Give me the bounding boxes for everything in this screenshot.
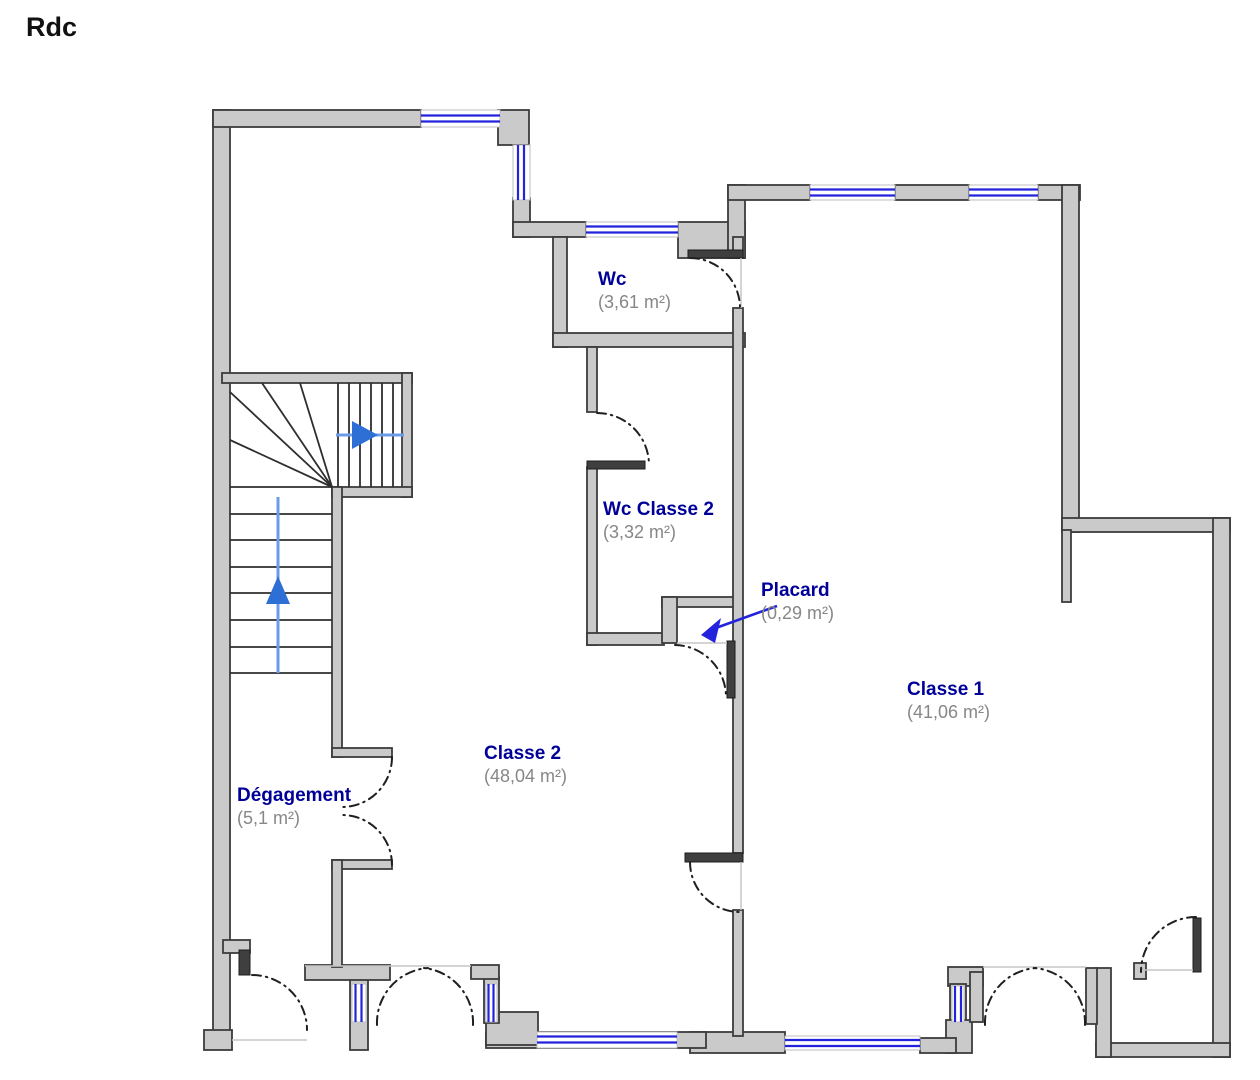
room-name: Classe 1	[907, 678, 990, 701]
interior-walls	[222, 237, 1071, 1036]
room-name: Classe 2	[484, 742, 567, 765]
room-area: (48,04 m²)	[484, 765, 567, 787]
staircase	[230, 383, 404, 673]
room-name: Dégagement	[237, 784, 351, 807]
room-label-classe2: Classe 2 (48,04 m²)	[484, 742, 567, 787]
floor-plan-page: Rdc	[0, 0, 1260, 1080]
room-area: (3,32 m²)	[603, 521, 714, 543]
room-label-wc-classe2: Wc Classe 2 (3,32 m²)	[603, 498, 714, 543]
room-label-wc: Wc (3,61 m²)	[598, 268, 671, 313]
room-label-placard: Placard (0,29 m²)	[761, 579, 834, 624]
room-label-classe1: Classe 1 (41,06 m²)	[907, 678, 990, 723]
room-name: Placard	[761, 579, 834, 602]
room-area: (0,29 m²)	[761, 602, 834, 624]
room-label-degagement: Dégagement (5,1 m²)	[237, 784, 351, 829]
room-name: Wc Classe 2	[603, 498, 714, 521]
room-area: (41,06 m²)	[907, 701, 990, 723]
room-area: (5,1 m²)	[237, 807, 351, 829]
room-name: Wc	[598, 268, 671, 291]
room-area: (3,61 m²)	[598, 291, 671, 313]
